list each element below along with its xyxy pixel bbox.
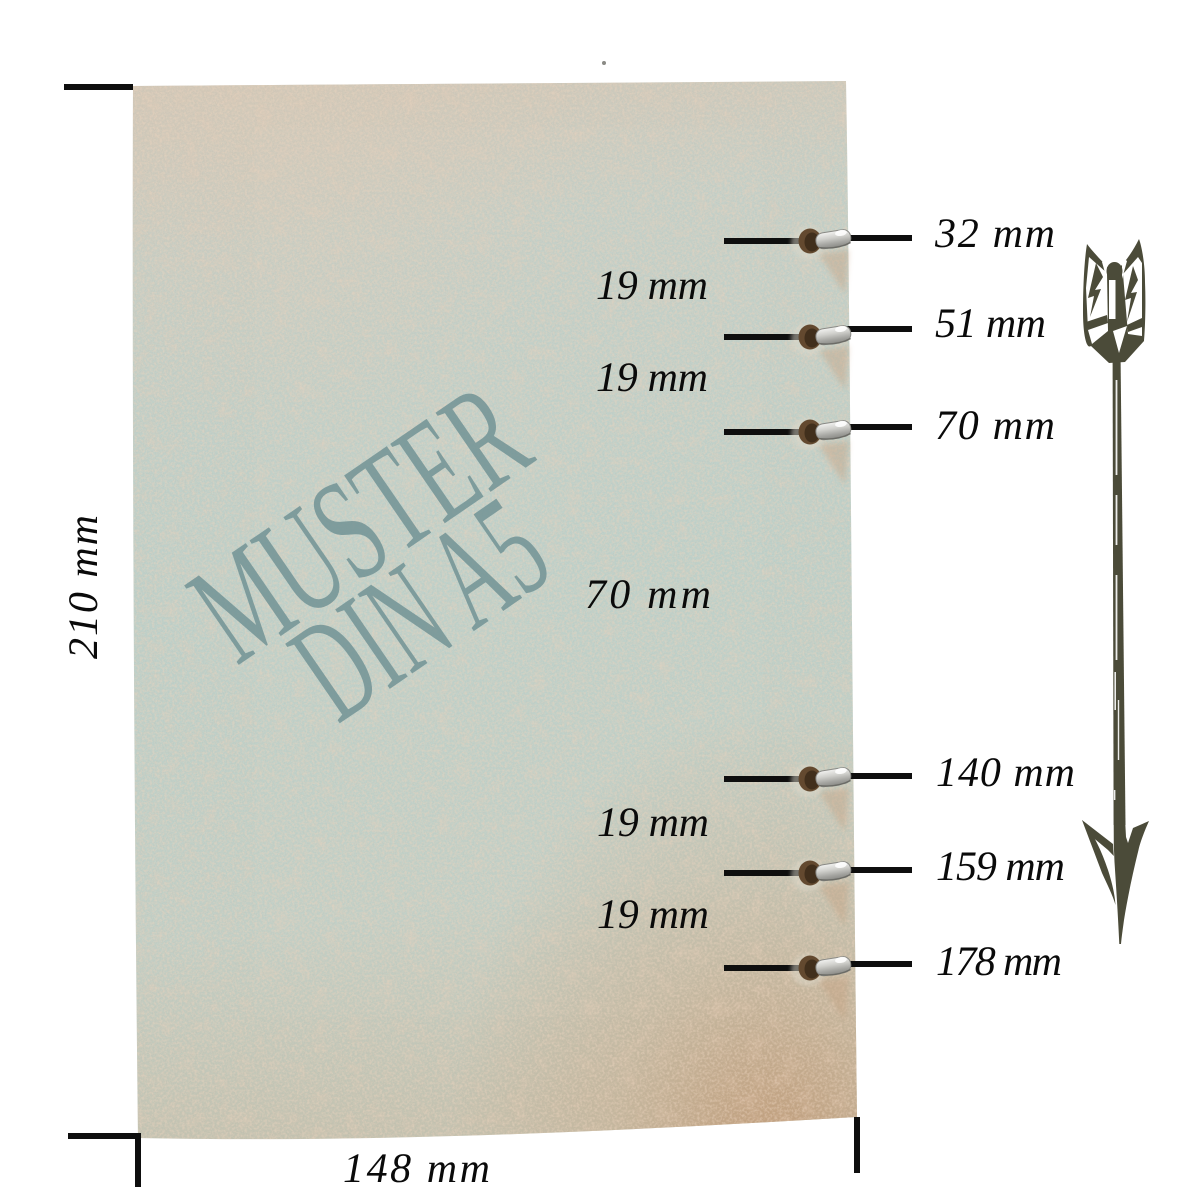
svg-text:140 mm: 140 mm <box>936 750 1075 796</box>
svg-text:19 mm: 19 mm <box>597 800 709 846</box>
svg-text:178 mm: 178 mm <box>936 939 1062 985</box>
svg-text:19 mm: 19 mm <box>596 263 708 309</box>
svg-text:159 mm: 159 mm <box>936 844 1065 890</box>
svg-text:51 mm: 51 mm <box>935 301 1046 347</box>
svg-text:19 mm: 19 mm <box>596 355 708 401</box>
svg-text:19 mm: 19 mm <box>597 892 709 938</box>
svg-text:70 mm: 70 mm <box>935 403 1055 449</box>
svg-text:32 mm: 32 mm <box>934 211 1055 257</box>
svg-text:70 mm: 70 mm <box>585 572 711 618</box>
